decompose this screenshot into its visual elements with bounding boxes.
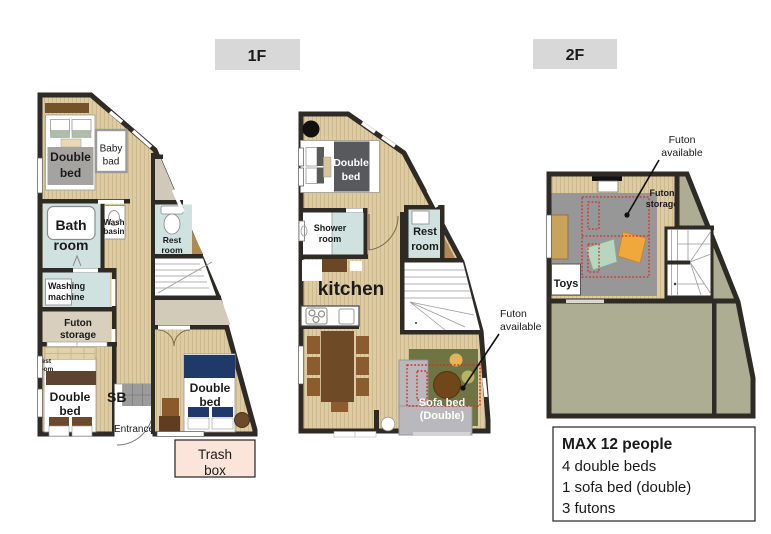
svg-text:Toys: Toys	[554, 278, 579, 290]
svg-text:bed: bed	[342, 171, 361, 183]
svg-text:storage: storage	[60, 330, 97, 341]
svg-text:Sofa bed: Sofa bed	[419, 397, 465, 409]
svg-text:Shower: Shower	[314, 223, 347, 233]
svg-text:Entrance: Entrance	[114, 424, 154, 435]
svg-text:Washing: Washing	[48, 281, 85, 291]
svg-text:Futon: Futon	[650, 188, 675, 198]
svg-text:bed: bed	[60, 166, 81, 180]
svg-text:3 futons: 3 futons	[562, 500, 615, 517]
svg-text:Futon: Futon	[64, 318, 92, 329]
svg-text:kitchen: kitchen	[318, 279, 385, 300]
svg-text:Double: Double	[50, 390, 91, 404]
svg-text:Double: Double	[190, 381, 231, 395]
svg-text:storage: storage	[646, 199, 679, 209]
svg-text:4 double beds: 4 double beds	[562, 458, 656, 475]
svg-text:MAX 12 people: MAX 12 people	[562, 436, 673, 453]
svg-text:machine: machine	[48, 292, 85, 302]
svg-text:Double: Double	[333, 157, 369, 169]
svg-text:room: room	[411, 241, 439, 253]
svg-text:room: room	[319, 234, 342, 244]
svg-text:Futon: Futon	[500, 308, 527, 320]
svg-text:room: room	[161, 245, 183, 255]
svg-text:bad: bad	[103, 157, 120, 168]
svg-text:SB: SB	[107, 389, 126, 405]
svg-text:Rest: Rest	[413, 226, 437, 238]
svg-text:room: room	[54, 237, 89, 253]
svg-text:available: available	[661, 147, 703, 159]
svg-text:bed: bed	[59, 404, 80, 418]
svg-text:bed: bed	[199, 395, 220, 409]
svg-text:Wash: Wash	[103, 218, 124, 227]
svg-text:box: box	[204, 463, 226, 478]
svg-text:Trash: Trash	[198, 447, 232, 462]
svg-text:basin: basin	[104, 227, 125, 236]
svg-text:1F: 1F	[248, 48, 267, 65]
svg-text:Futon: Futon	[669, 134, 696, 146]
svg-text:1 sofa bed (double): 1 sofa bed (double)	[562, 479, 691, 496]
svg-text:Rest: Rest	[163, 235, 182, 245]
svg-text:Double: Double	[50, 150, 91, 164]
svg-text:(Double): (Double)	[420, 410, 465, 422]
svg-text:2F: 2F	[566, 47, 585, 64]
svg-text:available: available	[500, 321, 542, 333]
svg-text:Baby: Baby	[100, 144, 123, 155]
svg-text:Bath: Bath	[55, 217, 86, 233]
